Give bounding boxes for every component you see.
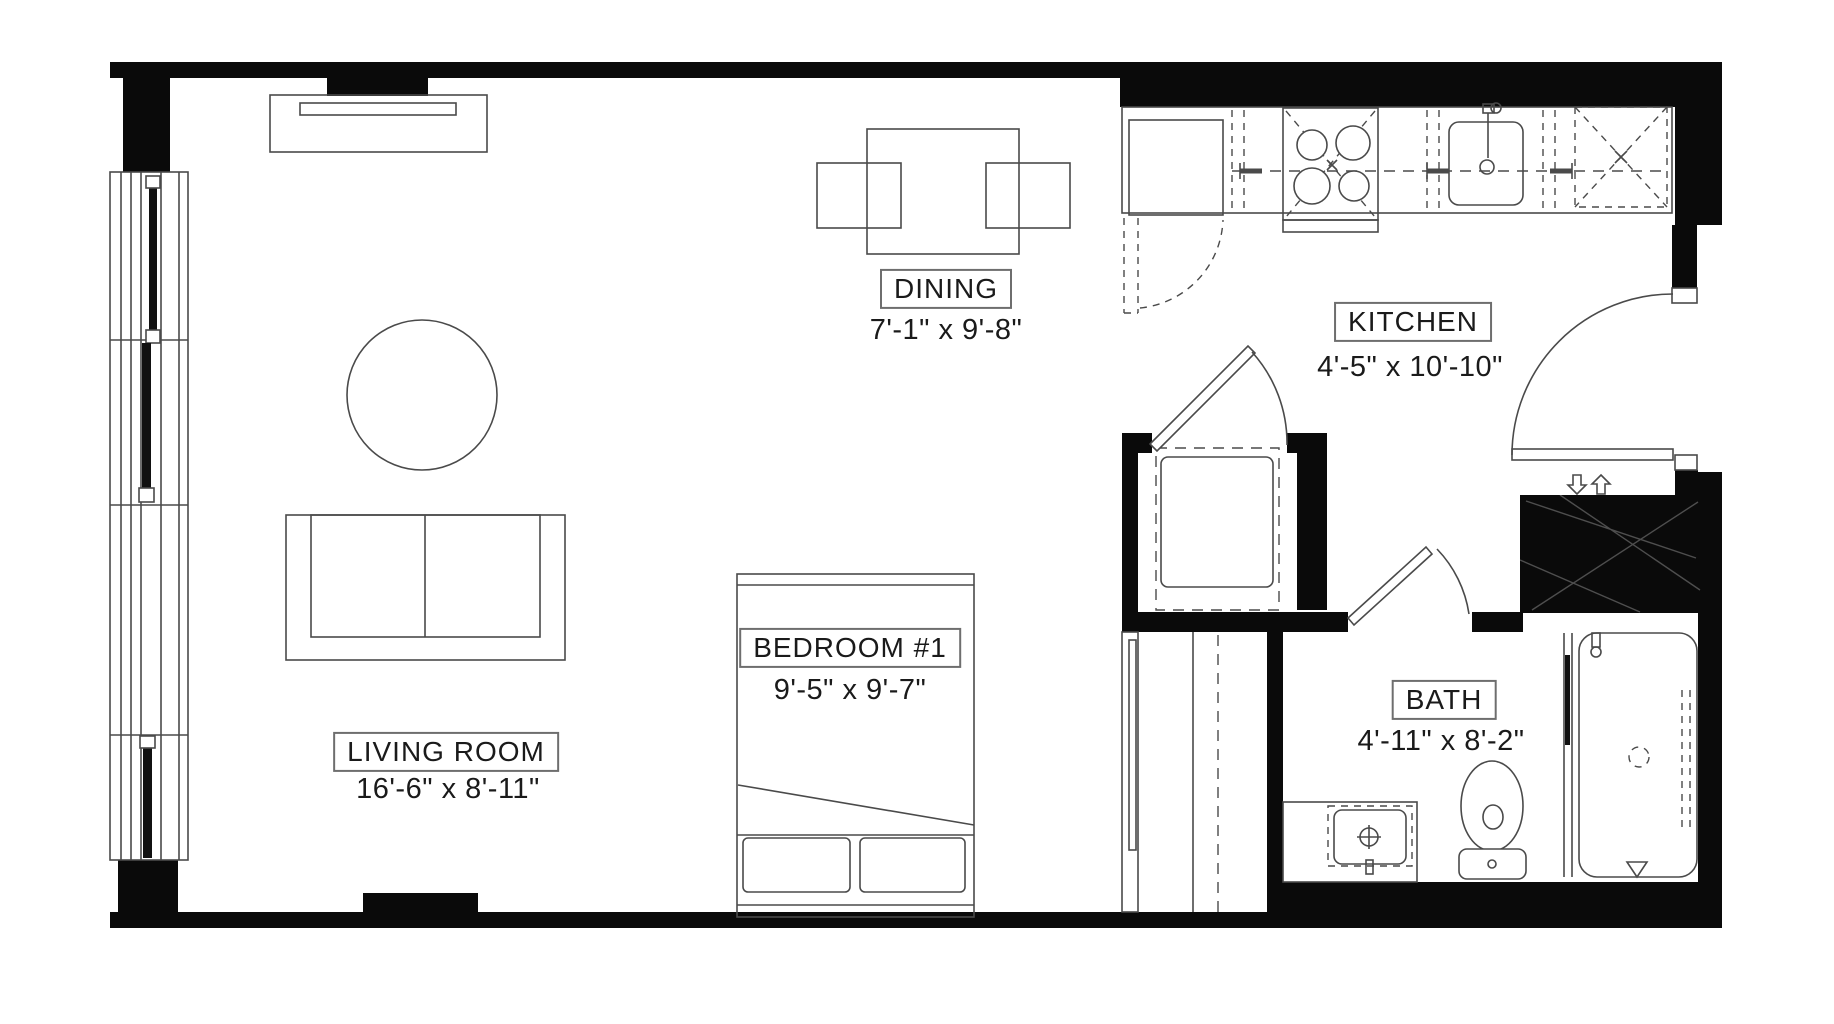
bedroom-closet [1122, 632, 1218, 912]
dims-kitchen: 4'-5" x 10'-10" [1317, 352, 1503, 384]
entry-door [1512, 288, 1697, 470]
bathtub [1579, 633, 1697, 877]
label-kitchen: KITCHEN [1334, 302, 1492, 342]
round-coffee-table [347, 320, 497, 470]
bath-vanity [1283, 802, 1417, 882]
bed [737, 574, 974, 917]
dims-living: 16'-6" x 8'-11" [356, 774, 540, 806]
utility-shaft [1520, 495, 1702, 613]
dims-bath: 4'-11" x 8'-2" [1357, 726, 1524, 758]
closet-door [1150, 346, 1255, 451]
tv-console [270, 95, 487, 152]
dining-chair-right [986, 163, 1070, 228]
shower-glass [1564, 633, 1572, 877]
floor-plan-drawing [0, 0, 1834, 1024]
toilet [1459, 761, 1526, 879]
refrigerator [1124, 120, 1223, 313]
tub-drain-marker [1627, 862, 1647, 877]
interior-walls [1122, 433, 1523, 912]
pillow-right [860, 838, 965, 892]
label-bedroom: BEDROOM #1 [739, 628, 961, 668]
dining-table [817, 129, 1070, 254]
entry-direction-arrows [1568, 475, 1610, 494]
dims-bedroom: 9'-5" x 9'-7" [774, 675, 927, 707]
floor-plan: DINING 7'-1" x 9'-8" KITCHEN 4'-5" x 10'… [0, 0, 1834, 1024]
label-bath: BATH [1392, 680, 1497, 720]
dining-chair-left [817, 163, 901, 228]
laundry-closet [1150, 346, 1287, 610]
bath-door [1348, 547, 1469, 625]
kitchen-sink [1449, 103, 1523, 205]
kitchen-counter [1122, 107, 1672, 213]
label-dining: DINING [880, 269, 1012, 309]
label-living: LIVING ROOM [333, 732, 559, 772]
pantry-cabinet [1575, 107, 1667, 207]
dims-dining: 7'-1" x 9'-8" [870, 315, 1023, 347]
window-wall [110, 172, 188, 860]
sofa [286, 515, 565, 660]
pillow-left [743, 838, 850, 892]
